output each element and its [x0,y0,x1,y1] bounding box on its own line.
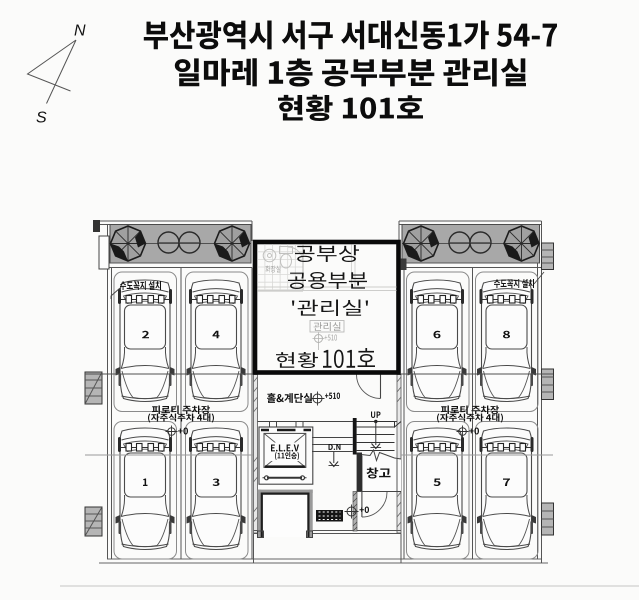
svg-text:S: S [36,110,47,127]
svg-text:N: N [74,23,86,40]
